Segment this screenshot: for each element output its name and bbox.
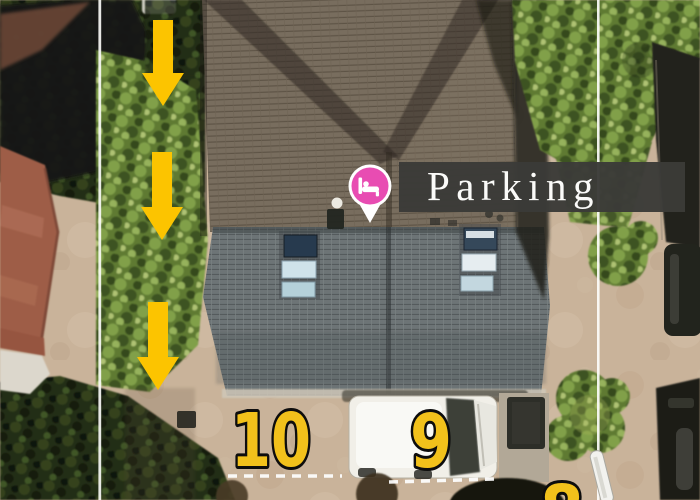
parking-label[interactable]: Parking <box>399 162 685 212</box>
map-canvas: Parking 10 9 8 <box>0 0 700 500</box>
skylights-left <box>279 231 320 299</box>
chimney <box>327 209 344 229</box>
boundary-line-left <box>98 0 101 500</box>
aerial-parking-map-image[interactable]: Parking 10 9 8 <box>0 0 700 500</box>
terrain <box>0 0 700 500</box>
parking-label-text: Parking <box>427 163 600 209</box>
skylights-right <box>459 224 501 296</box>
space-number-9: 9 <box>410 399 452 485</box>
parked-car-right-upper <box>664 244 700 336</box>
boundary-line-right <box>597 0 600 500</box>
space-number-8: 8 <box>540 470 584 500</box>
drain-cover <box>177 411 196 428</box>
carport-structure <box>499 393 549 482</box>
roof-vent-white <box>332 198 343 209</box>
space-number-10: 10 <box>231 398 311 484</box>
